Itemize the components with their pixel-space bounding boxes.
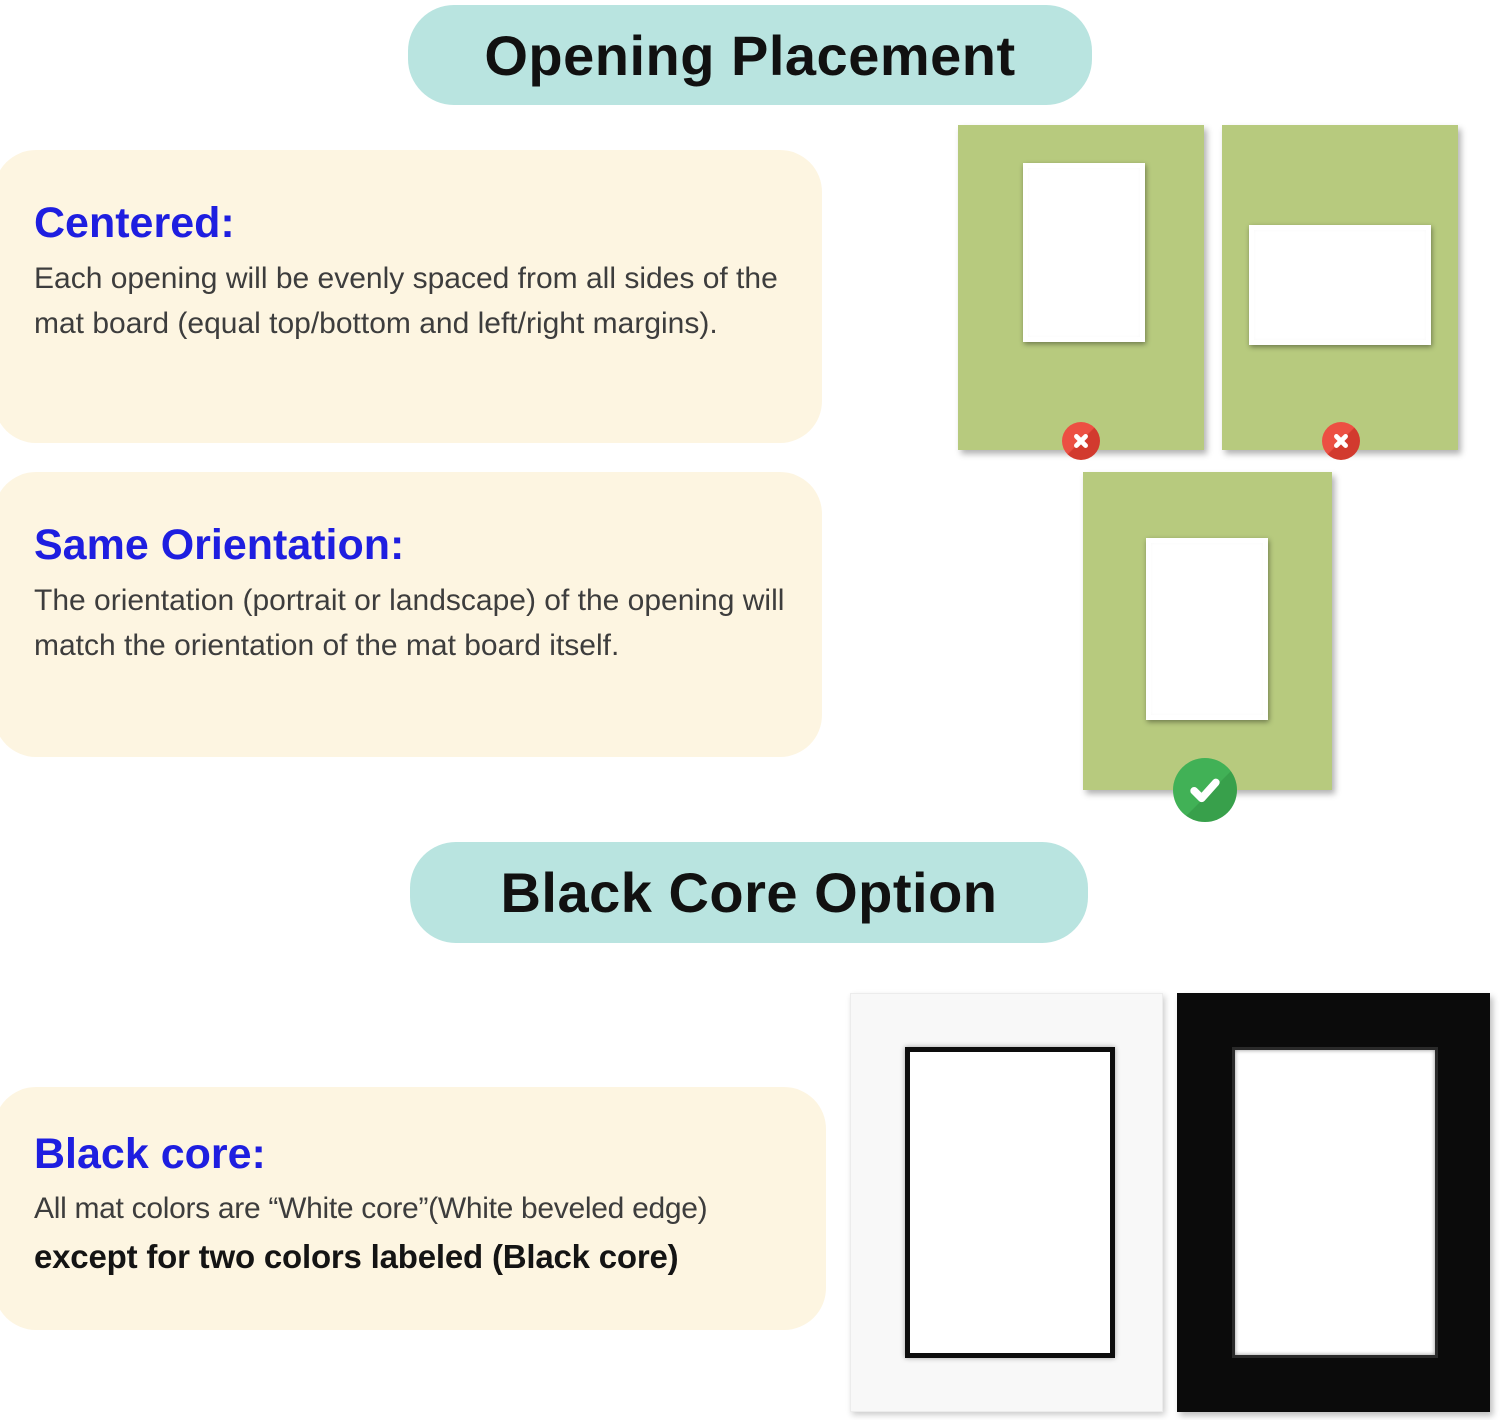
- info-panel-black-core: Black core: All mat colors are “White co…: [0, 1087, 826, 1330]
- info-panel-centered: Centered: Each opening will be evenly sp…: [0, 150, 822, 443]
- panel-body-centered: Each opening will be evenly spaced from …: [34, 256, 788, 346]
- correct-check-icon: [1173, 758, 1237, 822]
- mat-example-white-black-core: [850, 993, 1163, 1412]
- panel-heading-black-core: Black core:: [34, 1127, 792, 1181]
- panel-heading-centered: Centered:: [34, 196, 788, 250]
- section-header-opening-placement: Opening Placement: [408, 5, 1092, 105]
- infographic-canvas: Opening Placement Centered: Each opening…: [0, 0, 1500, 1420]
- mat-opening: [1146, 538, 1268, 720]
- panel-heading-same-orientation: Same Orientation:: [34, 518, 788, 572]
- mat-opening: [1249, 225, 1431, 345]
- mat-opening: [1023, 163, 1145, 342]
- mat-example-wrong-orientation-opening: [1222, 125, 1458, 450]
- section-header-text: Opening Placement: [484, 23, 1015, 88]
- mat-example-offcenter-opening: [958, 125, 1204, 450]
- panel-body-same-orientation: The orientation (portrait or landscape) …: [34, 578, 788, 668]
- mat-example-centered-opening: [1083, 472, 1332, 790]
- wrong-x-icon: [1322, 422, 1360, 460]
- panel-body-black-core-line1: All mat colors are “White core”(White be…: [34, 1187, 792, 1231]
- mat-opening-black-bevel: [905, 1047, 1115, 1358]
- mat-example-black-black-core: [1177, 993, 1490, 1412]
- panel-body-black-core-line2: except for two colors labeled (Black cor…: [34, 1233, 792, 1281]
- mat-opening-black-bevel: [1232, 1047, 1438, 1358]
- section-header-text: Black Core Option: [500, 860, 997, 925]
- section-header-black-core-option: Black Core Option: [410, 842, 1088, 943]
- info-panel-same-orientation: Same Orientation: The orientation (portr…: [0, 472, 822, 757]
- wrong-x-icon: [1062, 422, 1100, 460]
